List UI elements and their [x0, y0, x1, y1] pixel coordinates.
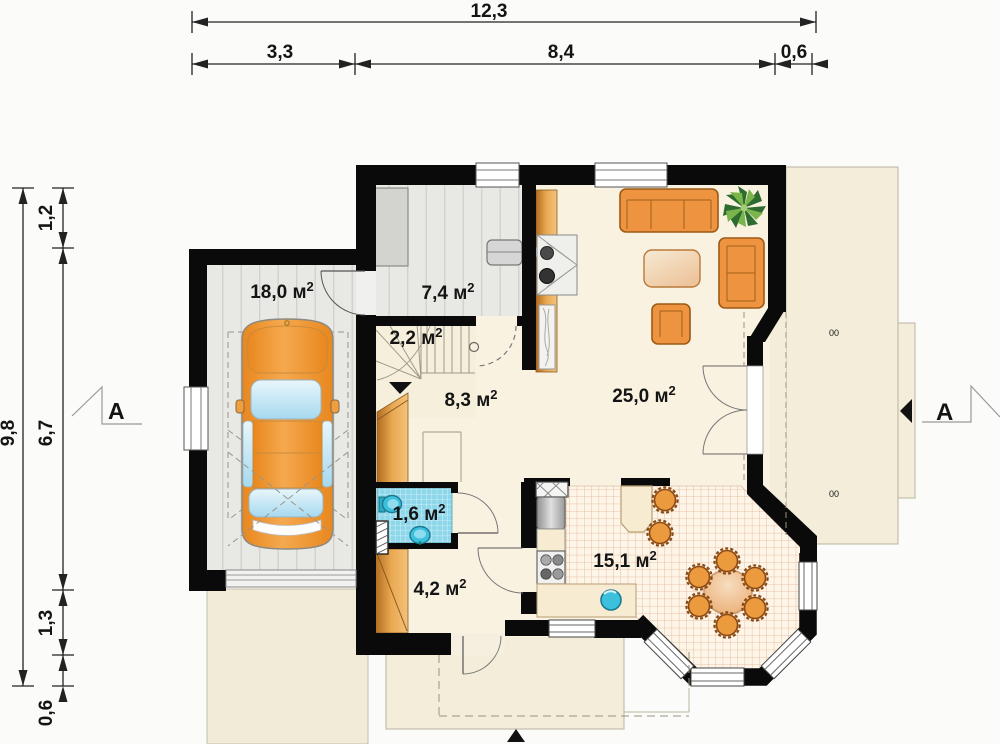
svg-text:3,3: 3,3 — [267, 42, 293, 63]
svg-text:8,3 м2: 8,3 м2 — [445, 387, 498, 411]
svg-text:18,0 м2: 18,0 м2 — [250, 279, 314, 303]
svg-text:00: 00 — [829, 328, 839, 338]
svg-text:1,2: 1,2 — [36, 205, 57, 231]
svg-text:6,7: 6,7 — [36, 420, 57, 446]
svg-text:1,6 м2: 1,6 м2 — [393, 501, 446, 525]
svg-text:15,1 м2: 15,1 м2 — [593, 548, 657, 572]
svg-text:9,8: 9,8 — [0, 420, 19, 446]
svg-text:0,6: 0,6 — [781, 42, 807, 63]
svg-text:0,6: 0,6 — [36, 700, 57, 726]
svg-text:2,2 м2: 2,2 м2 — [390, 325, 443, 349]
svg-text:A: A — [108, 398, 125, 424]
svg-text:8,4: 8,4 — [548, 42, 575, 63]
svg-text:1,3: 1,3 — [36, 610, 57, 636]
svg-text:4,2 м2: 4,2 м2 — [414, 576, 467, 600]
svg-text:7,4 м2: 7,4 м2 — [422, 280, 475, 304]
svg-text:12,3: 12,3 — [471, 1, 508, 22]
svg-text:00: 00 — [829, 489, 839, 499]
svg-text:A: A — [936, 399, 953, 426]
svg-text:25,0 м2: 25,0 м2 — [612, 383, 676, 407]
